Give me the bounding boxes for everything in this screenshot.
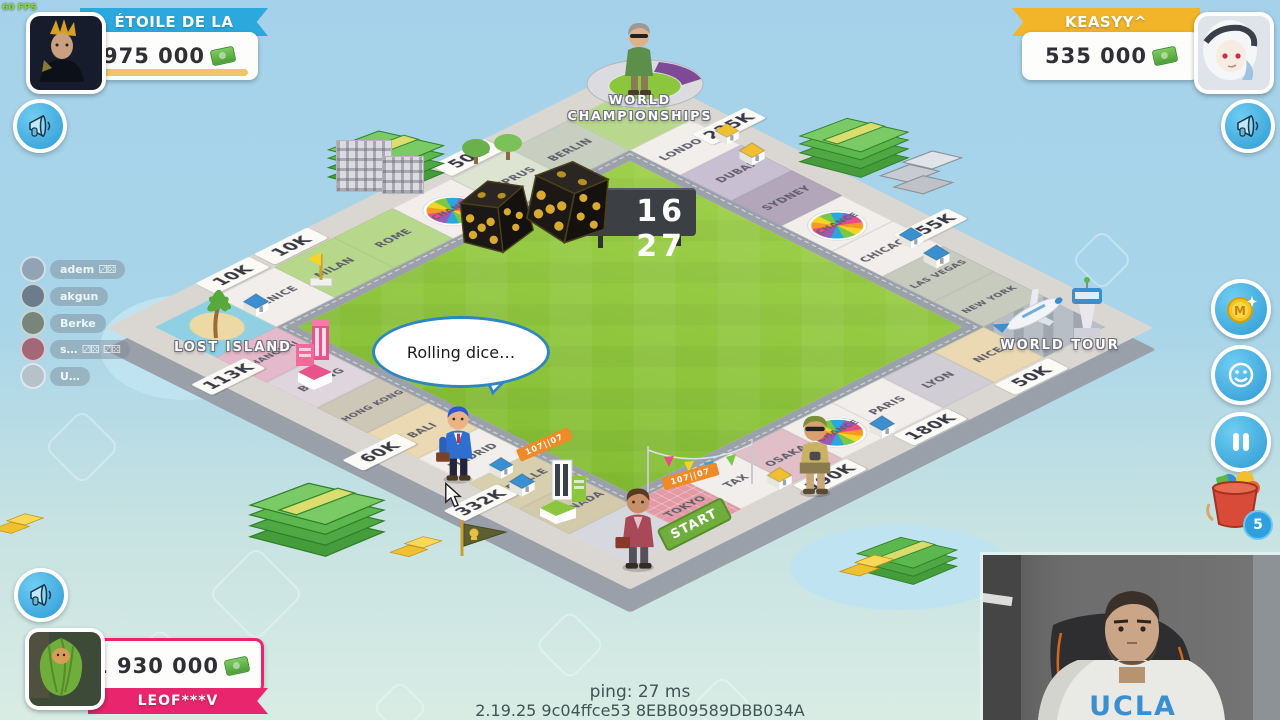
- player-token-green: [616, 22, 662, 100]
- player-token-blue: [434, 402, 482, 484]
- dice-icon: ⚂⚄: [98, 263, 115, 276]
- money-stack: [238, 458, 396, 562]
- avatar: [20, 283, 46, 309]
- spectator-name: adem: [60, 263, 94, 276]
- spectator-row[interactable]: akgun: [20, 283, 108, 309]
- milan-flag: [306, 246, 336, 290]
- lost-island-label: LOST ISLAND: [158, 340, 308, 356]
- announce-button[interactable]: [1221, 99, 1275, 153]
- city-building: [382, 156, 424, 194]
- emotes-button[interactable]: [1211, 345, 1271, 405]
- fps-counter: 60 FPS: [2, 3, 37, 13]
- pause-icon: [1229, 430, 1253, 454]
- megaphone-icon: [1235, 113, 1261, 139]
- palm-tree: [196, 290, 240, 342]
- house-icon: [736, 139, 768, 167]
- seville-buildings: [534, 458, 592, 524]
- player-name-banner: LEOF***V: [88, 688, 268, 714]
- player-money-card: 535 000: [1022, 32, 1200, 80]
- money-bill-icon: [210, 46, 237, 67]
- spectator-row[interactable]: s… ⚂⚄ ⚂⚄: [20, 336, 130, 362]
- house-icon: [240, 290, 272, 318]
- avatar: [20, 363, 46, 389]
- announce-button[interactable]: [13, 99, 67, 153]
- player-token-khaki: [790, 412, 840, 498]
- house-icon: [920, 241, 953, 270]
- player-token-maroon: [612, 484, 664, 572]
- dice-icon: ⚂⚄: [82, 343, 99, 356]
- avatar: [20, 310, 46, 336]
- dice-icon: [513, 146, 620, 258]
- speech-bubble: Rolling dice…: [372, 316, 550, 388]
- gift-bucket-button[interactable]: 5: [1203, 468, 1267, 534]
- game-screen: { "hud": { "fps": "60 FPS", "ping": "pin…: [0, 0, 1280, 720]
- spectator-row[interactable]: adem ⚂⚄: [20, 256, 125, 282]
- spectator-name: Berke: [60, 317, 96, 330]
- gold-bars: [0, 505, 46, 545]
- spectator-row[interactable]: Berke: [20, 310, 106, 336]
- money-bill-icon: [224, 656, 251, 677]
- coins-button[interactable]: M: [1211, 279, 1271, 339]
- spectator-name: s…: [60, 343, 78, 356]
- avatar: [20, 336, 46, 362]
- coin-icon: M: [1225, 293, 1257, 325]
- turn-timer-bar: [92, 69, 248, 76]
- svg-text:M: M: [1234, 304, 1246, 318]
- smiley-icon: [1226, 360, 1256, 390]
- silver-bars: [876, 134, 966, 204]
- spectator-name: akgun: [60, 290, 98, 303]
- trophy-pennant: [456, 516, 510, 560]
- mouse-cursor-icon: [444, 482, 462, 508]
- gold-bars: [386, 528, 446, 568]
- avatar[interactable]: [25, 628, 105, 710]
- house-icon: [866, 412, 898, 440]
- dice-icon: ⚂⚄: [103, 343, 120, 356]
- bucket-count-badge: 5: [1243, 510, 1273, 540]
- avatar[interactable]: [1194, 12, 1274, 94]
- spectator-row[interactable]: U…: [20, 363, 90, 389]
- avatar: [20, 256, 46, 282]
- airplane: [985, 280, 1081, 344]
- announce-button[interactable]: [14, 568, 68, 622]
- money-bill-icon: [1152, 46, 1179, 67]
- world-tour-label: WORLD TOUR: [995, 338, 1125, 354]
- avatar[interactable]: [26, 12, 106, 94]
- spectator-name: U…: [60, 370, 80, 383]
- megaphone-icon: [28, 582, 54, 608]
- pause-button[interactable]: [1211, 412, 1271, 472]
- player-money-card: 1 930 000: [78, 638, 264, 694]
- gold-bars: [836, 546, 898, 588]
- megaphone-icon: [27, 113, 53, 139]
